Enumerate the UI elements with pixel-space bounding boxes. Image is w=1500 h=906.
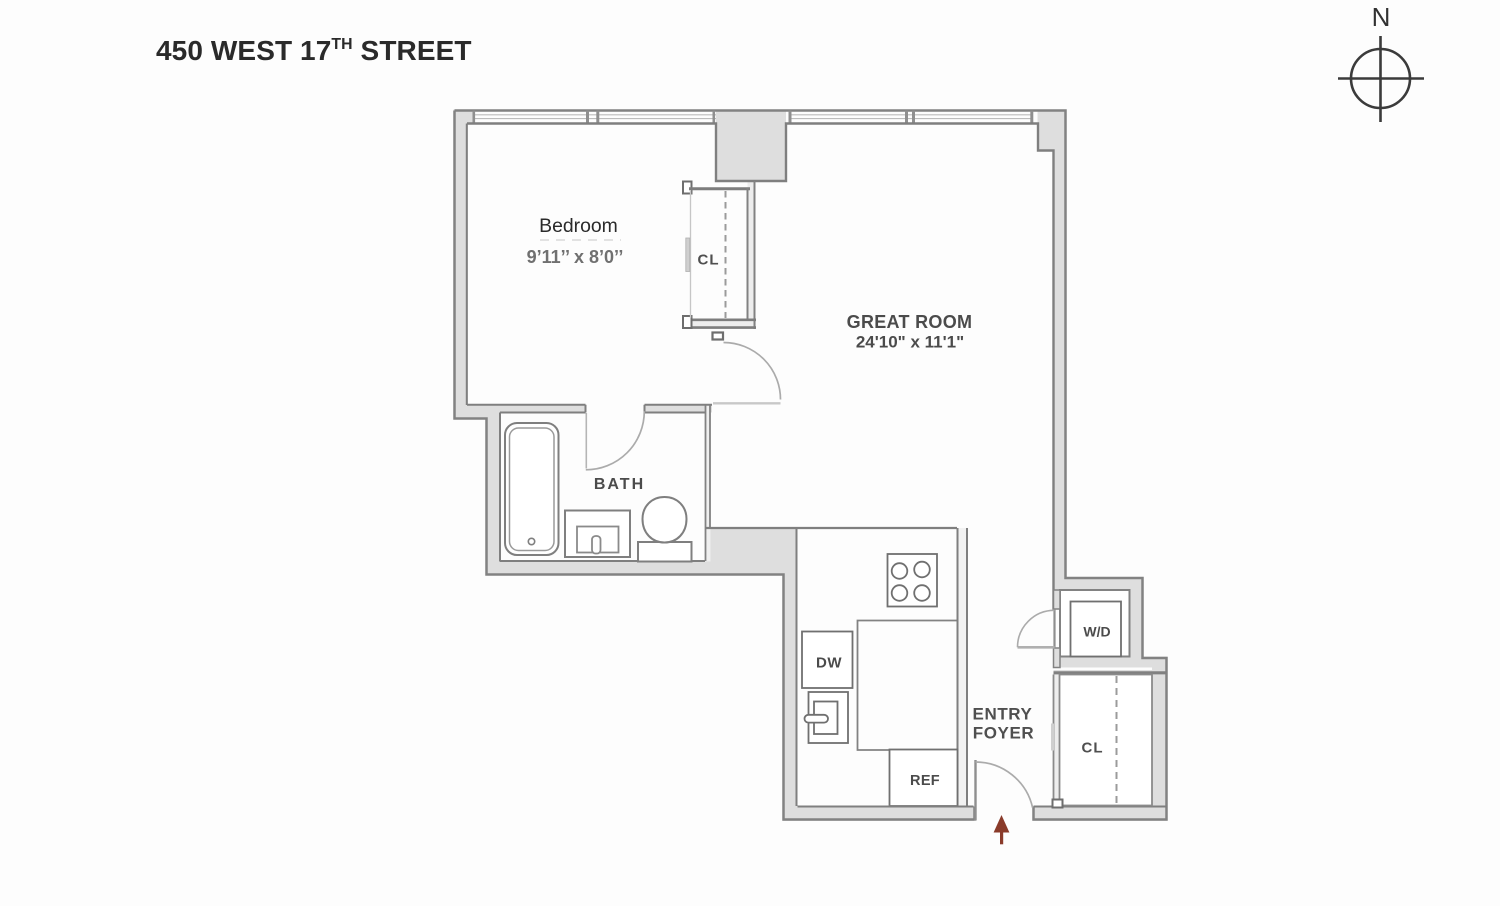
svg-text:GREAT ROOM: GREAT ROOM	[847, 312, 973, 332]
svg-text:N: N	[1372, 2, 1391, 32]
svg-text:ENTRY: ENTRY	[973, 705, 1033, 724]
svg-text:CL: CL	[698, 252, 720, 269]
svg-text:9’11’’ x 8’0’’: 9’11’’ x 8’0’’	[527, 247, 624, 267]
svg-text:450 WEST 17TH STREET: 450 WEST 17TH STREET	[156, 35, 472, 66]
svg-text:DW: DW	[816, 655, 842, 672]
svg-text:CL: CL	[1082, 740, 1104, 757]
svg-text:W/D: W/D	[1083, 624, 1110, 640]
svg-text:BATH: BATH	[594, 476, 645, 493]
svg-text:Bedroom: Bedroom	[539, 215, 618, 237]
svg-text:FOYER: FOYER	[973, 724, 1035, 743]
svg-text:REF: REF	[910, 773, 940, 789]
svg-text:24'10" x 11'1": 24'10" x 11'1"	[856, 333, 964, 352]
